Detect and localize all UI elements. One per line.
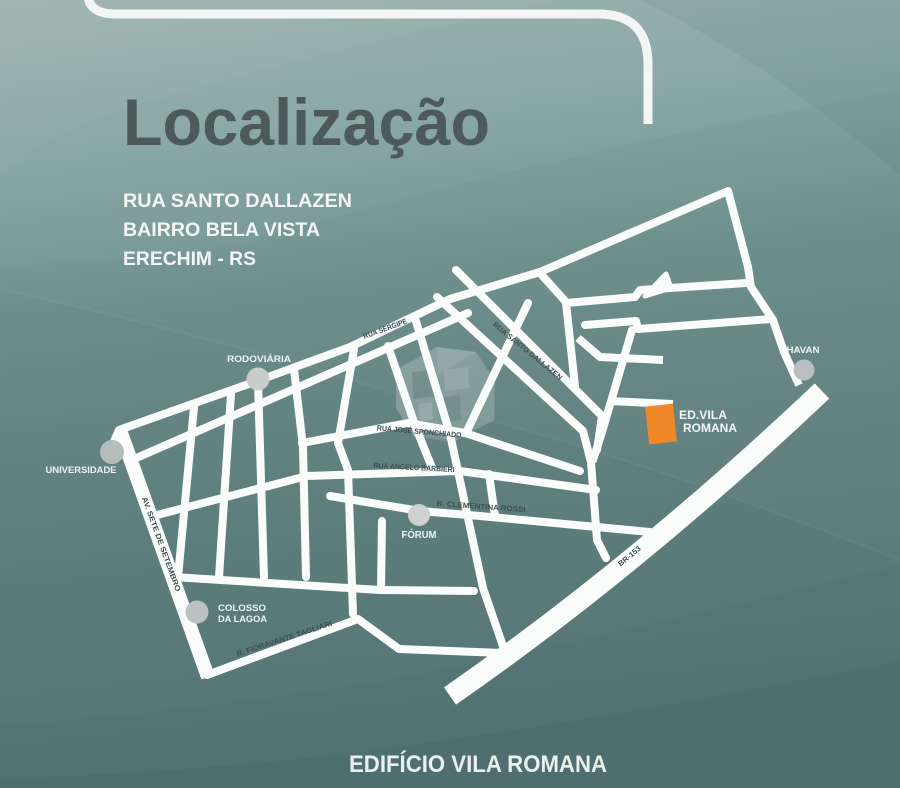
svg-text:DA LAGOA: DA LAGOA: [218, 614, 267, 625]
svg-text:ED.VILA: ED.VILA: [679, 410, 727, 422]
svg-text:BAIRRO BELA VISTA: BAIRRO BELA VISTA: [123, 220, 320, 241]
svg-text:RUA SANTO DALLAZEN: RUA SANTO DALLAZEN: [123, 191, 352, 212]
svg-text:ERECHIM - RS: ERECHIM - RS: [123, 249, 256, 270]
svg-text:RODOVIÁRIA: RODOVIÁRIA: [227, 354, 291, 365]
svg-text:HAVAN: HAVAN: [787, 345, 820, 356]
svg-text:COLOSSO: COLOSSO: [218, 603, 266, 614]
svg-text:UNIVERSIDADE: UNIVERSIDADE: [46, 465, 117, 475]
svg-text:Localização: Localização: [123, 85, 490, 159]
svg-text:EDIFÍCIO VILA ROMANA: EDIFÍCIO VILA ROMANA: [349, 750, 607, 778]
svg-text:ROMANA: ROMANA: [683, 423, 737, 435]
svg-text:FÓRUM: FÓRUM: [402, 528, 437, 541]
